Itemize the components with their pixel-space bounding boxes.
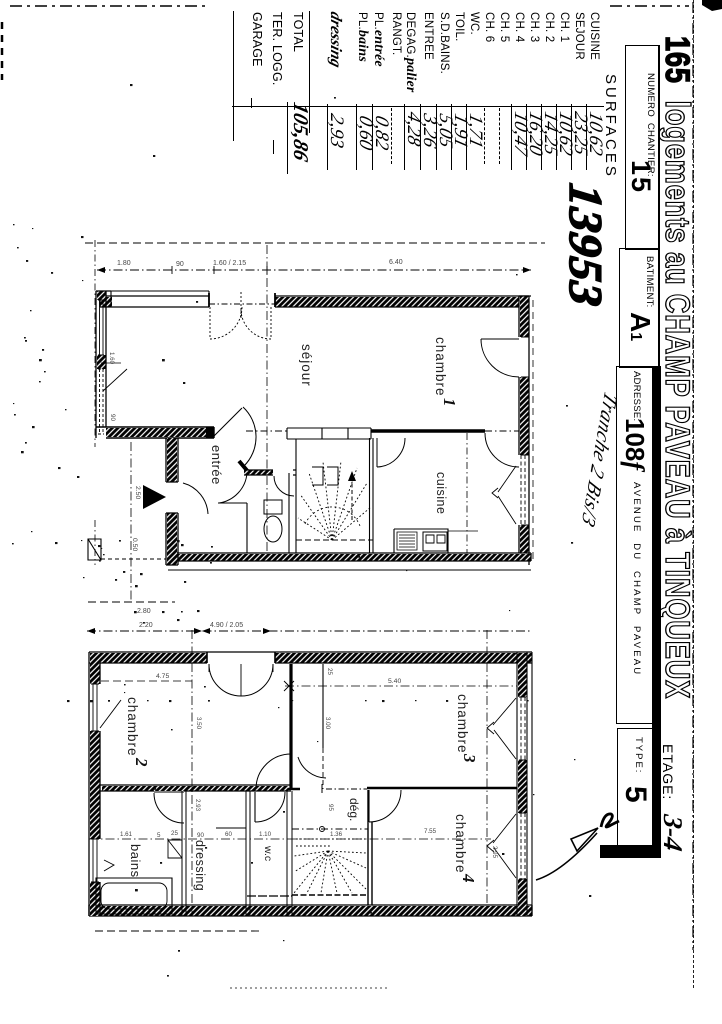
svg-text:cuisine: cuisine bbox=[434, 472, 448, 514]
svg-text:6.40: 6.40 bbox=[389, 259, 403, 266]
svg-text:séjour: séjour bbox=[299, 344, 314, 387]
svg-text:2.93: 2.93 bbox=[194, 799, 201, 812]
svg-text:5.40: 5.40 bbox=[388, 678, 401, 685]
svg-text:w.c: w.c bbox=[262, 845, 274, 861]
svg-text:2: 2 bbox=[132, 757, 151, 767]
svg-text:25: 25 bbox=[171, 830, 178, 837]
svg-text:3: 3 bbox=[460, 753, 479, 763]
svg-text:3.00: 3.00 bbox=[324, 717, 331, 730]
svg-text:1.60: 1.60 bbox=[108, 352, 115, 365]
svg-text:3.50: 3.50 bbox=[195, 717, 202, 730]
svg-text:2.80: 2.80 bbox=[137, 608, 151, 615]
svg-text:7.55: 7.55 bbox=[424, 828, 437, 835]
svg-text:1.60 / 2.15: 1.60 / 2.15 bbox=[213, 260, 246, 267]
svg-text:5: 5 bbox=[157, 832, 161, 839]
svg-text:chambre: chambre bbox=[433, 337, 448, 397]
svg-text:0.50: 0.50 bbox=[131, 538, 138, 551]
svg-text:chambre: chambre bbox=[455, 694, 470, 754]
svg-text:dressing: dressing bbox=[193, 840, 207, 891]
svg-text:2.50: 2.50 bbox=[134, 486, 141, 499]
svg-text:1.80: 1.80 bbox=[117, 260, 131, 267]
svg-text:60: 60 bbox=[225, 831, 232, 838]
svg-text:25: 25 bbox=[326, 668, 333, 675]
svg-text:95: 95 bbox=[327, 804, 334, 811]
svg-text:90: 90 bbox=[109, 414, 116, 421]
svg-text:entrée: entrée bbox=[209, 445, 224, 485]
svg-text:1.36: 1.36 bbox=[330, 831, 343, 838]
svg-text:dég.: dég. bbox=[347, 798, 361, 821]
svg-text:4.90 / 2.05: 4.90 / 2.05 bbox=[210, 622, 243, 629]
svg-text:1: 1 bbox=[440, 398, 459, 407]
svg-text:4.75: 4.75 bbox=[156, 673, 169, 680]
svg-text:90: 90 bbox=[176, 261, 184, 268]
svg-text:chambre: chambre bbox=[453, 814, 468, 874]
svg-text:2.20: 2.20 bbox=[139, 622, 153, 629]
svg-text:bains: bains bbox=[128, 844, 143, 878]
svg-text:chambre: chambre bbox=[125, 697, 140, 757]
svg-text:1.10: 1.10 bbox=[259, 831, 272, 838]
svg-text:1.61: 1.61 bbox=[120, 831, 133, 838]
svg-text:2.95: 2.95 bbox=[491, 846, 498, 859]
svg-text:90: 90 bbox=[197, 832, 204, 839]
svg-text:4: 4 bbox=[459, 873, 478, 883]
